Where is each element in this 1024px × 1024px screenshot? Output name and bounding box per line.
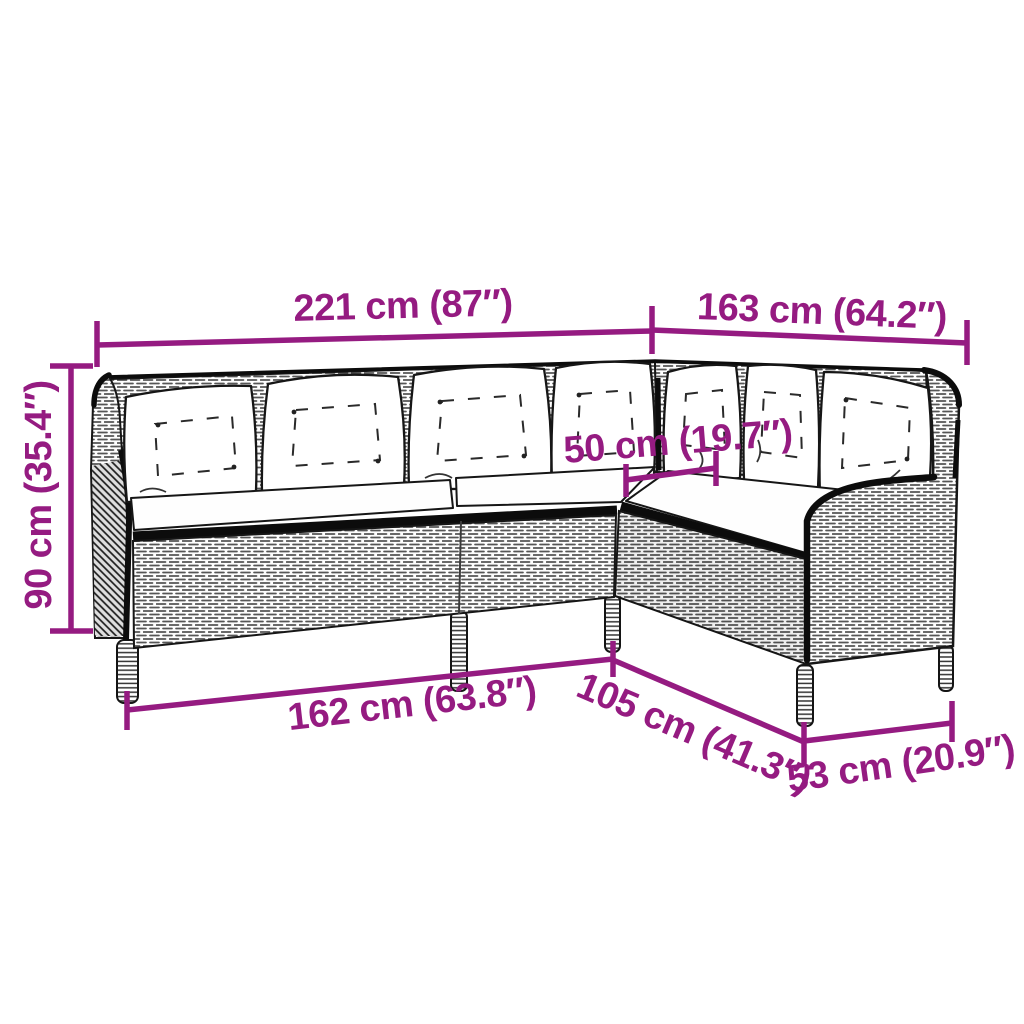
dim-label-total-width: 221 cm (87″) — [293, 284, 513, 328]
sofa-left-arm-shade — [92, 460, 128, 636]
leg-right-arm — [939, 645, 953, 691]
back-cushion — [262, 375, 405, 495]
back-cushion — [124, 386, 256, 502]
dim-label-total-depth: 163 cm (64.2″) — [696, 288, 947, 336]
dim-label-height: 90 cm (35.4″) — [20, 380, 58, 609]
sofa-right-arm-back-edge — [955, 420, 958, 478]
leg-right-rear — [797, 665, 813, 726]
product-dimension-diagram: 221 cm (87″) 163 cm (64.2″) 90 cm (35.4″… — [0, 0, 1024, 1024]
dim-line-arm-base-width — [804, 701, 952, 742]
back-cushion — [409, 367, 552, 490]
sofa-line-art — [0, 0, 1024, 1024]
